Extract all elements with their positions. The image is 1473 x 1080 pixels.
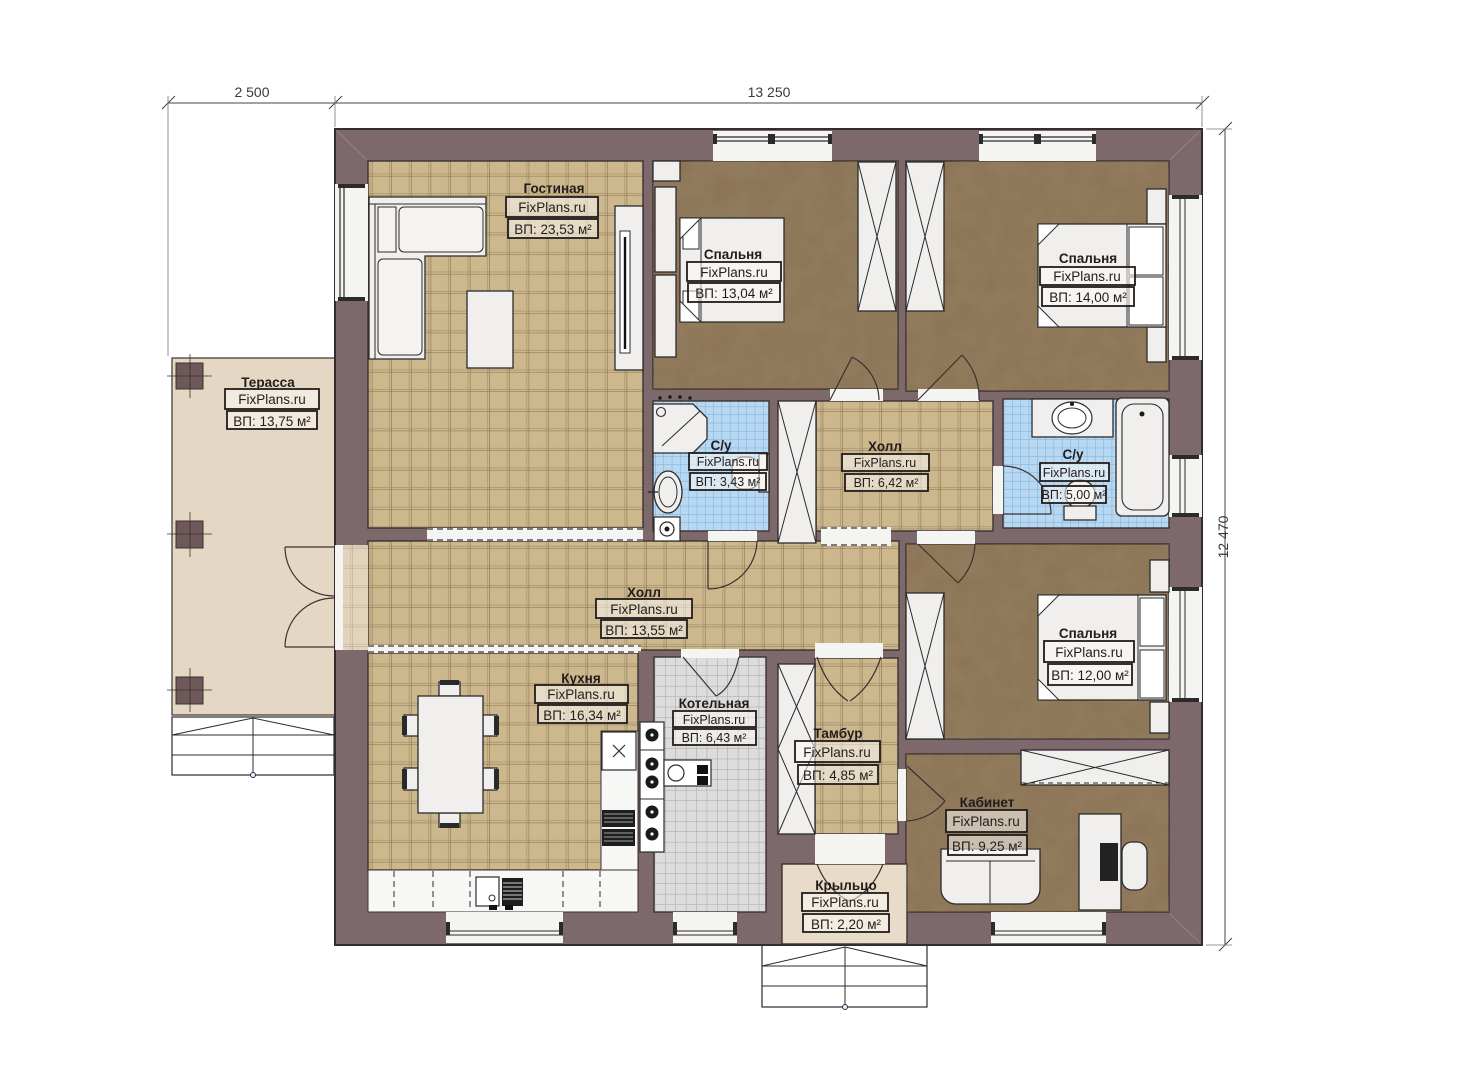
svg-text:FixPlans.ru: FixPlans.ru [683,713,746,727]
svg-text:FixPlans.ru: FixPlans.ru [1053,269,1121,284]
svg-text:FixPlans.ru: FixPlans.ru [697,455,760,469]
svg-text:Тамбур: Тамбур [814,726,863,741]
svg-text:FixPlans.ru: FixPlans.ru [803,745,871,760]
svg-text:С/у: С/у [1062,447,1084,462]
svg-text:FixPlans.ru: FixPlans.ru [518,200,586,215]
svg-text:FixPlans.ru: FixPlans.ru [952,814,1020,829]
svg-text:FixPlans.ru: FixPlans.ru [700,265,768,280]
svg-text:FixPlans.ru: FixPlans.ru [854,456,917,470]
svg-text:ВП: 16,34 м²: ВП: 16,34 м² [543,708,621,723]
svg-text:ВП: 2,20 м²: ВП: 2,20 м² [811,917,882,932]
svg-text:ВП: 5,00 м²: ВП: 5,00 м² [1042,488,1107,502]
svg-text:Гостиная: Гостиная [523,181,584,196]
svg-text:ВП: 9,25 м²: ВП: 9,25 м² [952,839,1023,854]
svg-text:ВП: 23,53 м²: ВП: 23,53 м² [514,222,592,237]
svg-text:Кухня: Кухня [561,671,600,686]
svg-text:ВП: 6,42 м²: ВП: 6,42 м² [854,476,919,490]
svg-text:ВП: 13,55 м²: ВП: 13,55 м² [605,623,683,638]
svg-text:Крыльцо: Крыльцо [815,878,876,893]
svg-text:ВП: 13,04 м²: ВП: 13,04 м² [695,286,773,301]
svg-text:2 500: 2 500 [234,84,269,100]
svg-text:ВП: 12,00 м²: ВП: 12,00 м² [1051,668,1129,683]
svg-text:С/у: С/у [710,438,732,453]
svg-text:FixPlans.ru: FixPlans.ru [1055,645,1123,660]
svg-text:FixPlans.ru: FixPlans.ru [811,895,879,910]
svg-text:FixPlans.ru: FixPlans.ru [610,602,678,617]
svg-text:FixPlans.ru: FixPlans.ru [238,392,306,407]
svg-text:ВП: 6,43 м²: ВП: 6,43 м² [682,731,747,745]
svg-text:Спальня: Спальня [704,247,762,262]
svg-text:Спальня: Спальня [1059,626,1117,641]
svg-text:Терасса: Терасса [241,375,295,390]
svg-text:Кабинет: Кабинет [960,795,1015,810]
svg-text:ВП: 13,75 м²: ВП: 13,75 м² [233,414,311,429]
svg-text:Холл: Холл [627,585,661,600]
svg-text:ВП: 3,43 м²: ВП: 3,43 м² [696,475,761,489]
svg-text:Холл: Холл [868,439,902,454]
svg-text:Спальня: Спальня [1059,251,1117,266]
svg-text:FixPlans.ru: FixPlans.ru [547,687,615,702]
svg-text:12 470: 12 470 [1215,515,1231,558]
svg-text:ВП: 14,00 м²: ВП: 14,00 м² [1049,290,1127,305]
svg-text:ВП: 4,85 м²: ВП: 4,85 м² [803,768,874,783]
svg-text:13 250: 13 250 [748,84,791,100]
svg-text:Котельная: Котельная [679,696,750,711]
svg-text:FixPlans.ru: FixPlans.ru [1043,466,1106,480]
